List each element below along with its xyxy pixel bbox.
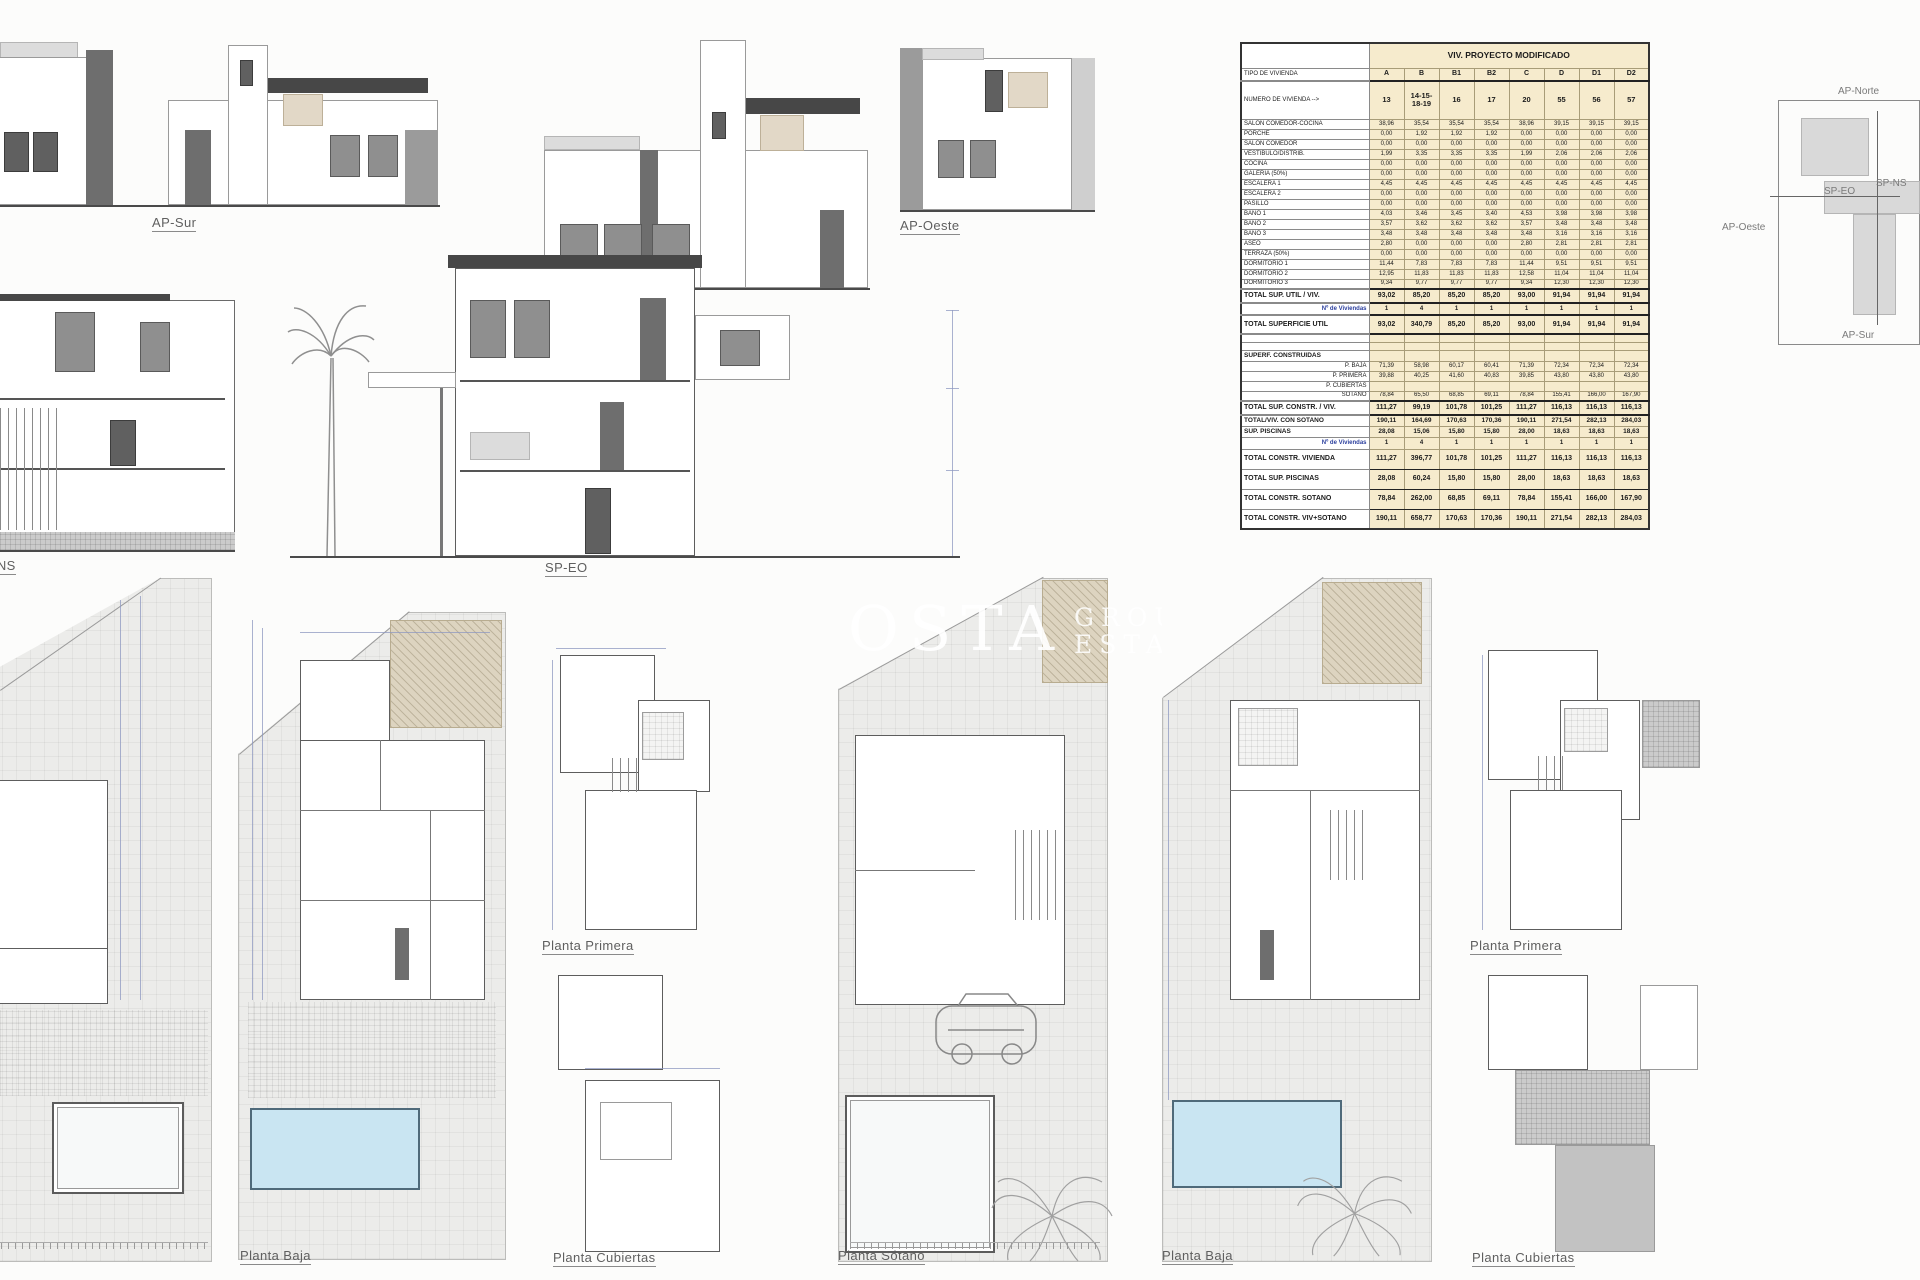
table-cell: 284,03 (1614, 509, 1649, 529)
table-cell (1474, 350, 1509, 361)
table-cell: 18,63 (1544, 426, 1579, 437)
table-cell: 4,45 (1404, 179, 1439, 189)
row-label: Nº de Viviendas (1241, 437, 1369, 449)
table-cell: 101,78 (1439, 449, 1474, 469)
table-cell: 3,57 (1369, 219, 1404, 229)
table-cell: 3,40 (1474, 209, 1509, 219)
table-cell (1439, 334, 1474, 342)
table-row: BAÑO 33,483,483,483,483,483,163,163,16 (1241, 229, 1649, 239)
table-cell: 15,80 (1439, 469, 1474, 489)
table-cell (1404, 342, 1439, 350)
table-cell: 40,83 (1474, 371, 1509, 381)
label-planta-primera-right: Planta Primera (1470, 938, 1562, 955)
table-cell: 190,11 (1509, 509, 1544, 529)
table-cell: 0,00 (1544, 169, 1579, 179)
table-row: DORMITORIO 39,349,779,779,779,3412,3012,… (1241, 279, 1649, 289)
row-label: SALON COMEDOR-COCINA (1241, 119, 1369, 129)
table-cell: 18,63 (1579, 469, 1614, 489)
table-cell: 271,54 (1544, 415, 1579, 426)
table-cell: 91,94 (1579, 289, 1614, 303)
table-row: TOTAL/VIV. CON SOTANO190,11164,69170,631… (1241, 415, 1649, 426)
table-row: VIV. PROYECTO MODIFICADO (1241, 43, 1649, 68)
table-row: ESCALERA 14,454,454,454,454,454,454,454,… (1241, 179, 1649, 189)
table-cell: 7,83 (1474, 259, 1509, 269)
table-cell: 78,84 (1509, 489, 1544, 509)
table-cell: 0,00 (1474, 159, 1509, 169)
table-cell (1509, 350, 1544, 361)
table-cell: 166,00 (1579, 391, 1614, 401)
table-cell: 170,63 (1439, 415, 1474, 426)
table-cell: 4,45 (1579, 179, 1614, 189)
table-cell: 85,20 (1474, 315, 1509, 334)
table-cell: 15,80 (1474, 426, 1509, 437)
table-cell: 284,03 (1614, 415, 1649, 426)
table-cell: 0,00 (1544, 139, 1579, 149)
table-cell: 3,16 (1614, 229, 1649, 239)
table-cell: 155,41 (1544, 489, 1579, 509)
table-cell (1404, 334, 1439, 342)
table-cell (1579, 334, 1614, 342)
table-cell: 1,99 (1509, 149, 1544, 159)
row-label: PASILLO (1241, 199, 1369, 209)
row-label: PORCHE (1241, 129, 1369, 139)
table-cell: 0,00 (1404, 169, 1439, 179)
table-cell: 0,00 (1614, 129, 1649, 139)
table-cell: 0,00 (1509, 249, 1544, 259)
table-cell: 0,00 (1614, 249, 1649, 259)
table-cell: D2 (1614, 68, 1649, 81)
table-cell: 170,36 (1474, 415, 1509, 426)
table-cell: 0,00 (1579, 169, 1614, 179)
table-cell (1369, 342, 1404, 350)
table-cell: 18,63 (1614, 426, 1649, 437)
table-cell: 0,00 (1614, 189, 1649, 199)
table-cell: 28,00 (1509, 426, 1544, 437)
table-cell: 72,34 (1544, 361, 1579, 371)
table-row: ESCALERA 20,000,000,000,000,000,000,000,… (1241, 189, 1649, 199)
table-cell: 170,36 (1474, 509, 1509, 529)
table-cell (1579, 342, 1614, 350)
row-label: TOTAL CONSTR. SOTANO (1241, 489, 1369, 509)
row-label: P. BAJA (1241, 361, 1369, 371)
table-cell: 190,11 (1509, 415, 1544, 426)
table-cell: 71,39 (1369, 361, 1404, 371)
table-cell: 101,25 (1474, 449, 1509, 469)
table-cell: 58,98 (1404, 361, 1439, 371)
table-cell: 28,00 (1509, 469, 1544, 489)
table-row: BAÑO 23,573,623,623,623,573,483,483,48 (1241, 219, 1649, 229)
row-label: COCINA (1241, 159, 1369, 169)
table-cell: 1 (1614, 303, 1649, 315)
site-key-ap-norte: AP-Norte (1838, 86, 1879, 97)
table-row: BAÑO 14,033,463,453,404,533,983,983,98 (1241, 209, 1649, 219)
table-cell: 3,48 (1509, 229, 1544, 239)
table-cell: 0,00 (1579, 189, 1614, 199)
table-cell: 116,13 (1579, 449, 1614, 469)
row-label: Nº de Viviendas (1241, 303, 1369, 315)
table-cell: 85,20 (1474, 289, 1509, 303)
table-row (1241, 342, 1649, 350)
table-cell: 0,00 (1474, 199, 1509, 209)
table-cell: 68,85 (1439, 489, 1474, 509)
row-label: BAÑO 1 (1241, 209, 1369, 219)
table-cell: 4,45 (1369, 179, 1404, 189)
row-label: P. CUBIERTAS (1241, 381, 1369, 391)
table-cell (1509, 342, 1544, 350)
table-cell: 0,00 (1474, 189, 1509, 199)
table-cell: 3,45 (1439, 209, 1474, 219)
table-cell: 17 (1474, 81, 1509, 119)
table-cell (1474, 342, 1509, 350)
table-cell: 93,00 (1509, 315, 1544, 334)
table-cell: 93,02 (1369, 289, 1404, 303)
table-cell: 18,63 (1579, 426, 1614, 437)
table-row: SUPERF. CONSTRUIDAS (1241, 350, 1649, 361)
table-row: VESTIBULO/DISTRIB.1,993,353,353,351,992,… (1241, 149, 1649, 159)
table-cell: 40,25 (1404, 371, 1439, 381)
table-cell: 2,06 (1544, 149, 1579, 159)
table-cell: 0,00 (1544, 249, 1579, 259)
row-label: ESCALERA 2 (1241, 189, 1369, 199)
table-row: TOTAL CONSTR. VIVIENDA111,27396,77101,78… (1241, 449, 1649, 469)
table-row: P. BAJA71,3958,9860,1760,4171,3972,3472,… (1241, 361, 1649, 371)
table-cell: 271,54 (1544, 509, 1579, 529)
table-cell: 11,44 (1369, 259, 1404, 269)
table-cell (1614, 381, 1649, 391)
table-row: TOTAL SUP. CONSTR. / VIV.111,2799,19101,… (1241, 401, 1649, 415)
row-label (1241, 342, 1369, 350)
table-cell: 166,00 (1579, 489, 1614, 509)
table-cell: 0,00 (1509, 189, 1544, 199)
table-cell: 101,25 (1474, 401, 1509, 415)
table-cell: 9,77 (1439, 279, 1474, 289)
table-cell: 3,48 (1579, 219, 1614, 229)
row-label (1241, 43, 1369, 68)
row-label: TOTAL SUPERFICIE UTIL (1241, 315, 1369, 334)
table-cell: 170,63 (1439, 509, 1474, 529)
table-cell: 60,24 (1404, 469, 1439, 489)
table-row: PASILLO0,000,000,000,000,000,000,000,00 (1241, 199, 1649, 209)
row-label: TOTAL SUP. CONSTR. / VIV. (1241, 401, 1369, 415)
table-cell: 38,96 (1509, 119, 1544, 129)
table-cell: 78,84 (1509, 391, 1544, 401)
table-cell: 0,00 (1614, 169, 1649, 179)
table-cell: 28,08 (1369, 426, 1404, 437)
table-cell: 11,44 (1509, 259, 1544, 269)
table-row: TOTAL SUP. PISCINAS28,0860,2415,8015,802… (1241, 469, 1649, 489)
row-label: DORMITORIO 3 (1241, 279, 1369, 289)
table-cell: 0,00 (1579, 249, 1614, 259)
table-cell: 3,35 (1404, 149, 1439, 159)
table-cell: 190,11 (1369, 415, 1404, 426)
table-cell: 91,94 (1579, 315, 1614, 334)
table-cell: 0,00 (1369, 189, 1404, 199)
table-cell: 111,27 (1369, 449, 1404, 469)
row-label: P. PRIMERA (1241, 371, 1369, 381)
table-cell: 38,96 (1369, 119, 1404, 129)
table-cell: 190,11 (1369, 509, 1404, 529)
table-cell: 35,54 (1474, 119, 1509, 129)
table-cell: 39,15 (1544, 119, 1579, 129)
table-cell: 0,00 (1474, 249, 1509, 259)
table-cell: 39,15 (1614, 119, 1649, 129)
table-cell: 4,53 (1509, 209, 1544, 219)
table-cell: 0,00 (1439, 189, 1474, 199)
table-cell (1544, 381, 1579, 391)
table-cell: 658,77 (1404, 509, 1439, 529)
table-cell: 56 (1579, 81, 1614, 119)
table-cell: 93,00 (1509, 289, 1544, 303)
table-cell: 91,94 (1614, 289, 1649, 303)
table-cell: 3,48 (1474, 229, 1509, 239)
table-row: DORMITORIO 111,447,837,837,8311,449,519,… (1241, 259, 1649, 269)
table-cell: 12,30 (1579, 279, 1614, 289)
table-row: Nº de Viviendas14111111 (1241, 303, 1649, 315)
row-label: BAÑO 2 (1241, 219, 1369, 229)
table-cell: 1 (1544, 437, 1579, 449)
table-cell: 4,45 (1474, 179, 1509, 189)
table-cell: 3,98 (1614, 209, 1649, 219)
site-key-sp-ns: SP-NS (1876, 178, 1907, 189)
table-cell: 68,85 (1439, 391, 1474, 401)
table-cell: 1 (1509, 303, 1544, 315)
table-row: SALON COMEDOR0,000,000,000,000,000,000,0… (1241, 139, 1649, 149)
table-cell: 3,98 (1544, 209, 1579, 219)
table-cell: D (1544, 68, 1579, 81)
table-cell: 0,00 (1369, 159, 1404, 169)
table-cell: 2,81 (1579, 239, 1614, 249)
table-cell (1509, 334, 1544, 342)
row-label: SALON COMEDOR (1241, 139, 1369, 149)
site-key-ap-sur: AP-Sur (1842, 330, 1874, 341)
table-cell: 9,34 (1369, 279, 1404, 289)
table-cell: 3,48 (1404, 229, 1439, 239)
table-cell: 28,08 (1369, 469, 1404, 489)
row-label: TOTAL CONSTR. VIV+SOTANO (1241, 509, 1369, 529)
table-row: PORCHE0,001,921,921,920,000,000,000,00 (1241, 129, 1649, 139)
watermark-big: OSTA (848, 600, 1064, 658)
row-label: ASEO (1241, 239, 1369, 249)
row-label: SUPERF. CONSTRUIDAS (1241, 350, 1369, 361)
label-planta-cubiertas-right: Planta Cubiertas (1472, 1250, 1575, 1267)
label-ap-sur: AP-Sur (152, 215, 196, 232)
table-row: TERRAZA (50%)0,000,000,000,000,000,000,0… (1241, 249, 1649, 259)
table-cell: 167,90 (1614, 489, 1649, 509)
table-cell: 78,84 (1369, 489, 1404, 509)
palm-tree-icon (286, 296, 376, 560)
table-cell: 69,11 (1474, 391, 1509, 401)
table-cell: 0,00 (1439, 239, 1474, 249)
table-cell: 9,77 (1474, 279, 1509, 289)
table-cell: C (1509, 68, 1544, 81)
table-cell: 99,19 (1404, 401, 1439, 415)
table-cell: 4,45 (1439, 179, 1474, 189)
table-cell: 3,48 (1369, 229, 1404, 239)
table-cell: 1,92 (1404, 129, 1439, 139)
table-cell: 0,00 (1439, 159, 1474, 169)
table-cell: 4,03 (1369, 209, 1404, 219)
table-cell: 282,13 (1579, 509, 1614, 529)
table-cell (1544, 342, 1579, 350)
label-planta-sotano-mid: Planta Sótano (838, 1248, 925, 1265)
table-cell (1579, 381, 1614, 391)
table-cell: 12,95 (1369, 269, 1404, 279)
table-cell: 2,06 (1579, 149, 1614, 159)
table-cell: 3,16 (1544, 229, 1579, 239)
table-row: ASEO2,800,000,000,002,802,812,812,81 (1241, 239, 1649, 249)
table-cell: 1 (1579, 437, 1614, 449)
row-label (1241, 334, 1369, 342)
table-cell (1439, 350, 1474, 361)
table-cell: 111,27 (1509, 401, 1544, 415)
table-cell (1369, 381, 1404, 391)
table-cell: 0,00 (1509, 129, 1544, 139)
table-cell: 93,02 (1369, 315, 1404, 334)
table-row: P. CUBIERTAS (1241, 381, 1649, 391)
table-cell: 39,85 (1509, 371, 1544, 381)
table-cell (1614, 342, 1649, 350)
table-cell: 164,69 (1404, 415, 1439, 426)
table-cell: 7,83 (1439, 259, 1474, 269)
row-label: TIPO DE VIVIENDA (1241, 68, 1369, 81)
table-cell: 11,83 (1404, 269, 1439, 279)
table-cell: 4,45 (1614, 179, 1649, 189)
table-row: GALERIA (50%)0,000,000,000,000,000,000,0… (1241, 169, 1649, 179)
table-cell: 0,00 (1439, 199, 1474, 209)
table-title: VIV. PROYECTO MODIFICADO (1369, 43, 1649, 68)
table-cell: 0,00 (1614, 139, 1649, 149)
table-row: TOTAL CONSTR. VIV+SOTANO190,11658,77170,… (1241, 509, 1649, 529)
table-cell: 1 (1474, 303, 1509, 315)
table-cell: 11,04 (1579, 269, 1614, 279)
table-cell (1439, 381, 1474, 391)
table-cell: 1,92 (1474, 129, 1509, 139)
table-cell: 0,00 (1579, 139, 1614, 149)
table-cell: 55 (1544, 81, 1579, 119)
table-cell: 1 (1369, 303, 1404, 315)
table-cell: 0,00 (1614, 159, 1649, 169)
label-ap-oeste: AP-Oeste (900, 218, 960, 235)
table-row (1241, 334, 1649, 342)
table-cell: 15,80 (1439, 426, 1474, 437)
table-cell: 60,17 (1439, 361, 1474, 371)
row-label: VESTIBULO/DISTRIB. (1241, 149, 1369, 159)
viv-proyecto-table: VIV. PROYECTO MODIFICADOTIPO DE VIVIENDA… (1240, 42, 1650, 530)
table-cell: 0,00 (1369, 249, 1404, 259)
car-icon (928, 992, 1043, 1070)
table-cell: 41,60 (1439, 371, 1474, 381)
label-sp-ns: SP-NS (0, 558, 16, 575)
table-cell: 18,63 (1544, 469, 1579, 489)
table-row: COCINA0,000,000,000,000,000,000,000,00 (1241, 159, 1649, 169)
table-cell: 0,00 (1404, 249, 1439, 259)
table-row: TIPO DE VIVIENDAABB1B2CDD1D2 (1241, 68, 1649, 81)
table-cell: 0,00 (1404, 239, 1439, 249)
table-cell: 7,83 (1404, 259, 1439, 269)
table-cell: 3,62 (1474, 219, 1509, 229)
table-cell: 0,00 (1369, 199, 1404, 209)
table-cell: 3,48 (1439, 229, 1474, 239)
label-planta-baja-left: Planta Baja (240, 1248, 311, 1265)
row-label: TOTAL SUP. UTIL / VIV. (1241, 289, 1369, 303)
table-cell: 2,81 (1544, 239, 1579, 249)
row-label: TOTAL/VIV. CON SOTANO (1241, 415, 1369, 426)
table-cell: 1 (1369, 437, 1404, 449)
table-cell: 155,41 (1544, 391, 1579, 401)
table-cell: 78,84 (1369, 391, 1404, 401)
table-cell: 43,80 (1579, 371, 1614, 381)
table-cell: 0,00 (1404, 199, 1439, 209)
table-cell: 9,77 (1404, 279, 1439, 289)
table-cell: 12,30 (1614, 279, 1649, 289)
table-cell: 4,45 (1509, 179, 1544, 189)
site-key-ap-oeste: AP-Oeste (1722, 222, 1765, 233)
table-row: TOTAL SUPERFICIE UTIL93,02340,7985,2085,… (1241, 315, 1649, 334)
table-cell: 111,27 (1509, 449, 1544, 469)
table-cell: 101,78 (1439, 401, 1474, 415)
table-cell: D1 (1579, 68, 1614, 81)
table-cell: 3,35 (1474, 149, 1509, 159)
table-cell (1474, 334, 1509, 342)
table-cell: 0,00 (1404, 189, 1439, 199)
table-cell (1369, 350, 1404, 361)
table-cell: 0,00 (1369, 169, 1404, 179)
row-label: TOTAL SUP. PISCINAS (1241, 469, 1369, 489)
label-sp-eo: SP-EO (545, 560, 587, 577)
table-cell: 111,27 (1369, 401, 1404, 415)
table-cell: 18,63 (1614, 469, 1649, 489)
areas-table: VIV. PROYECTO MODIFICADOTIPO DE VIVIENDA… (1240, 42, 1650, 530)
table-row: SALON COMEDOR-COCINA38,9635,5435,5435,54… (1241, 119, 1649, 129)
table-cell: 11,04 (1614, 269, 1649, 279)
table-cell: 1 (1579, 303, 1614, 315)
row-label: TOTAL CONSTR. VIVIENDA (1241, 449, 1369, 469)
table-cell: 1 (1509, 437, 1544, 449)
table-cell: 0,00 (1579, 159, 1614, 169)
table-cell: 13 (1369, 81, 1404, 119)
table-cell: 2,80 (1509, 239, 1544, 249)
table-cell: 2,06 (1614, 149, 1649, 159)
table-cell (1614, 350, 1649, 361)
table-cell: 85,20 (1404, 289, 1439, 303)
table-cell: 15,06 (1404, 426, 1439, 437)
label-planta-primera-left: Planta Primera (542, 938, 634, 955)
table-cell: 116,13 (1579, 401, 1614, 415)
table-row: SUP. PISCINAS28,0815,0615,8015,8028,0018… (1241, 426, 1649, 437)
table-cell: 1 (1439, 303, 1474, 315)
table-cell: 35,54 (1404, 119, 1439, 129)
table-cell: 0,00 (1474, 239, 1509, 249)
table-cell: 9,51 (1544, 259, 1579, 269)
table-cell: 0,00 (1579, 199, 1614, 209)
table-cell: B1 (1439, 68, 1474, 81)
table-cell: 65,50 (1404, 391, 1439, 401)
label-planta-baja-right: Planta Baja (1162, 1248, 1233, 1265)
row-label: TERRAZA (50%) (1241, 249, 1369, 259)
table-cell: 9,34 (1509, 279, 1544, 289)
table-cell: 3,46 (1404, 209, 1439, 219)
table-cell: 116,13 (1544, 401, 1579, 415)
table-cell: 4,45 (1544, 179, 1579, 189)
table-cell (1544, 350, 1579, 361)
table-row: P. PRIMERA39,8840,2541,6040,8339,8543,80… (1241, 371, 1649, 381)
table-cell: 11,83 (1439, 269, 1474, 279)
table-cell: 0,00 (1439, 169, 1474, 179)
table-cell: 91,94 (1544, 315, 1579, 334)
table-cell: 3,62 (1404, 219, 1439, 229)
table-cell: 116,13 (1614, 401, 1649, 415)
table-cell: 0,00 (1544, 159, 1579, 169)
